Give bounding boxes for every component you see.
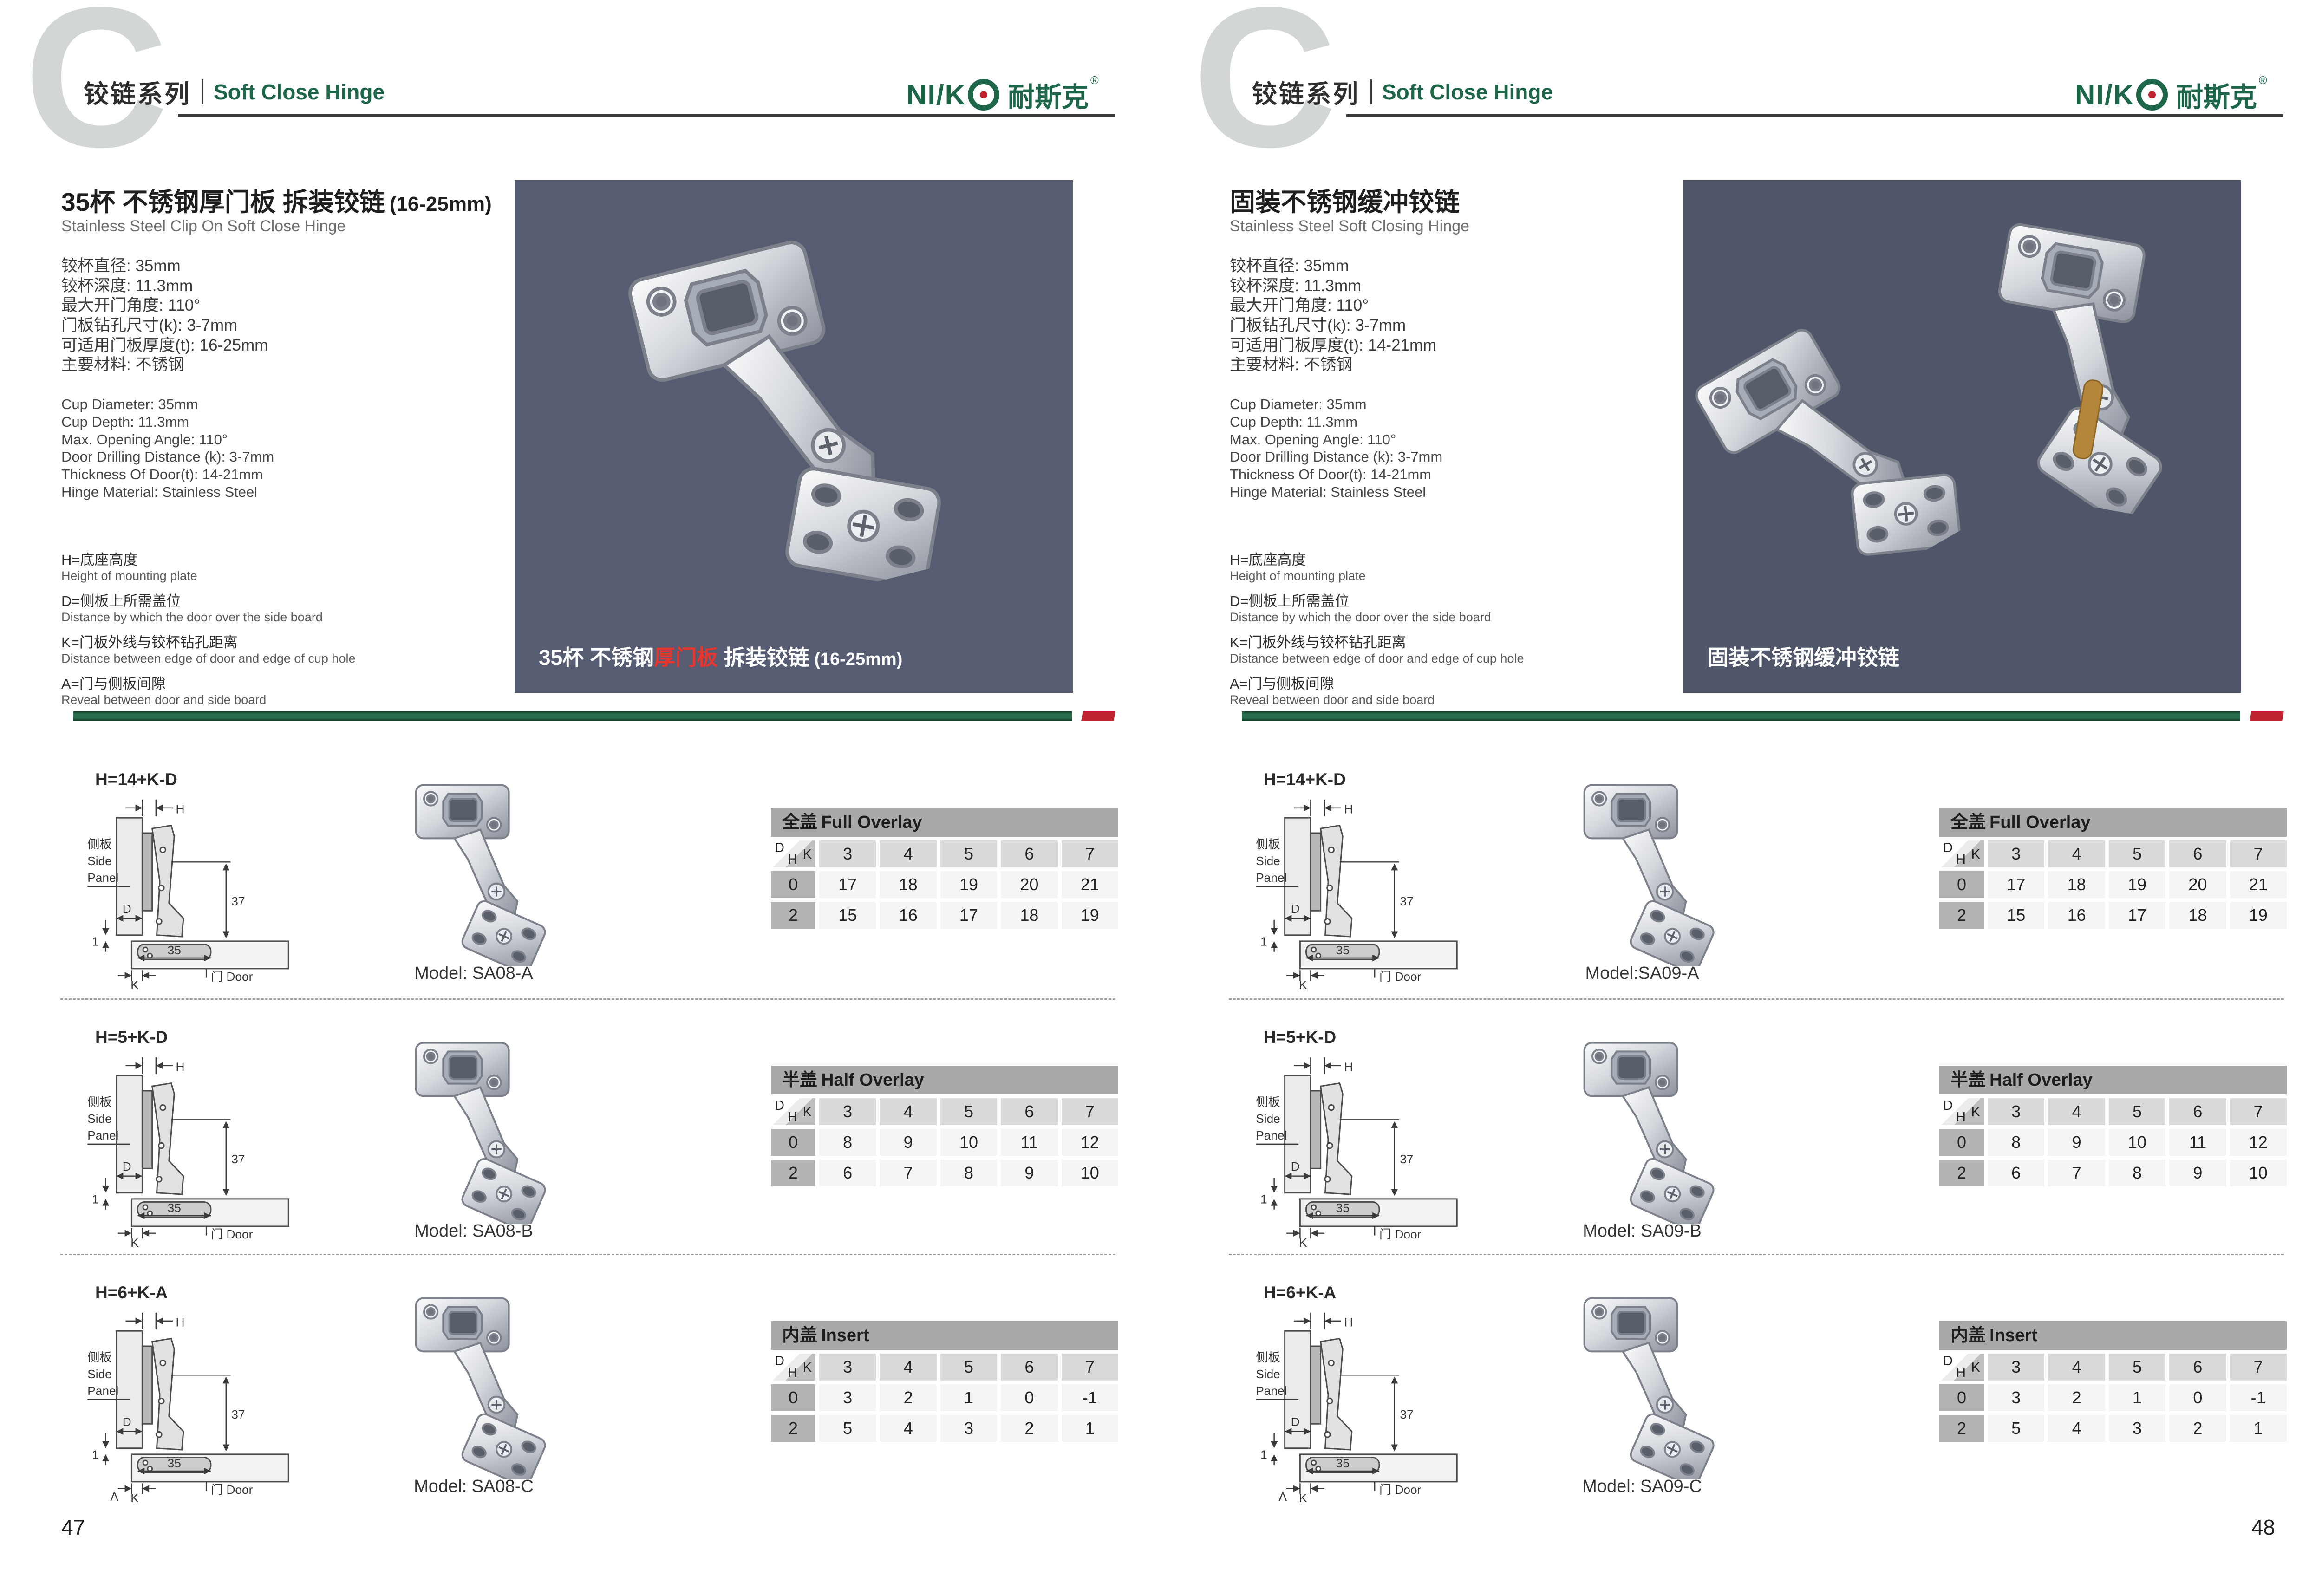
legend-item: K=门板外线与铰杯钻孔距离 Distance between edge of d… bbox=[61, 631, 355, 666]
page-number: 47 bbox=[61, 1515, 85, 1540]
caption-text: 拆装铰链 bbox=[718, 645, 809, 670]
row-header: 2 bbox=[771, 1415, 815, 1442]
spec-line: Max. Opening Angle: 110° bbox=[1230, 431, 1442, 449]
table-cell: 18 bbox=[880, 871, 936, 898]
mounting-formula: H=6+K-A bbox=[95, 1283, 168, 1303]
col-header: 4 bbox=[880, 840, 936, 867]
corner-k: K bbox=[1971, 1105, 1980, 1120]
corner-h: H bbox=[788, 852, 797, 867]
table-cell: 2 bbox=[2048, 1384, 2105, 1411]
catalog-spread: C 铰链系列 Soft Close Hinge NI/K 耐斯克 ® 35杯 不… bbox=[0, 0, 2322, 1596]
green-divider-bar bbox=[73, 711, 1072, 721]
page-header: 铰链系列 Soft Close Hinge bbox=[84, 73, 385, 110]
variant-row-insert: H=6+K-A A Model: SA08-C 内盖Insert D K H 3… bbox=[0, 1270, 1168, 1523]
col-header: 7 bbox=[1062, 1354, 1118, 1381]
table-cell: 12 bbox=[1062, 1129, 1118, 1156]
table-cell: 10 bbox=[2109, 1129, 2165, 1156]
table-corner-cell: D K H bbox=[771, 1098, 815, 1125]
technical-diagram: A bbox=[1254, 1303, 1483, 1503]
hero-hinge-image bbox=[515, 180, 1073, 693]
technical-diagram bbox=[86, 1048, 314, 1248]
diagram-drawing bbox=[87, 1313, 288, 1503]
table-cell: 10 bbox=[2230, 1160, 2287, 1186]
row-header: 0 bbox=[1939, 871, 1984, 898]
caption-highlight: 厚门板 bbox=[654, 645, 718, 670]
brand-logo: NI/K 耐斯克 ® bbox=[907, 75, 1099, 114]
model-label: Model: SA08-A bbox=[325, 964, 622, 984]
header-rule bbox=[178, 114, 1115, 117]
model-label: Model:SA09-A bbox=[1494, 964, 1791, 984]
table-cell: 9 bbox=[2169, 1160, 2226, 1186]
technical-diagram bbox=[1254, 790, 1483, 990]
table-title-en: Full Overlay bbox=[1989, 813, 2091, 832]
brand-logo-cn: 耐斯克 bbox=[2176, 75, 2257, 114]
table-corner-cell: D K H bbox=[1939, 1098, 1984, 1125]
table-cell: 1 bbox=[1062, 1415, 1118, 1442]
dim-a-label: A bbox=[110, 1490, 118, 1503]
table-cell: 10 bbox=[940, 1129, 997, 1156]
spec-line: Max. Opening Angle: 110° bbox=[61, 431, 274, 449]
table-cell: 21 bbox=[1062, 871, 1118, 898]
series-title-cn: 铰链系列 bbox=[84, 73, 191, 110]
series-title-en: Soft Close Hinge bbox=[1382, 79, 1553, 104]
table-cell: 2 bbox=[2169, 1415, 2226, 1442]
half-overlay-table: 半盖Half Overlay D K H 3 4 5 6 7 0 8 9 10 bbox=[1939, 1066, 2287, 1186]
legend-cn: K=门板外线与铰杯钻孔距离 bbox=[1230, 631, 1524, 651]
variant-row-half-overlay: H=5+K-D Model: SA08-B 半盖Half Overlay D K… bbox=[0, 1015, 1168, 1268]
col-header: 6 bbox=[2169, 840, 2226, 867]
catalog-page-47: C 铰链系列 Soft Close Hinge NI/K 耐斯克 ® 35杯 不… bbox=[0, 0, 1168, 1596]
specs-chinese: 铰杯直径: 35mm 铰杯深度: 11.3mm 最大开门角度: 110° 门板钻… bbox=[61, 256, 268, 375]
table-title-en: Half Overlay bbox=[1989, 1070, 2093, 1090]
table-cell: 18 bbox=[2048, 871, 2105, 898]
diagram-drawing bbox=[1256, 800, 1457, 990]
series-title-cn: 铰链系列 bbox=[1252, 73, 1360, 110]
table-grid: D K H 3 4 5 6 7 0 17 18 19 20 21 2 bbox=[771, 840, 1118, 929]
model-label: Model: SA08-C bbox=[325, 1477, 622, 1497]
hero-photo: 固装不锈钢缓冲铰链 bbox=[1683, 180, 2241, 693]
table-cell: 11 bbox=[1001, 1129, 1057, 1156]
corner-h: H bbox=[788, 1365, 797, 1381]
row-separator bbox=[60, 1254, 1115, 1255]
row-separator bbox=[1229, 998, 2284, 1000]
registered-mark: ® bbox=[2259, 74, 2267, 87]
model-label: Model: SA09-C bbox=[1494, 1477, 1791, 1497]
table-cell: 3 bbox=[940, 1415, 997, 1442]
brand-logo-text: NI/K bbox=[2075, 79, 2134, 111]
table-cell: 9 bbox=[1001, 1160, 1057, 1186]
table-title-cn: 半盖 bbox=[1950, 1070, 1986, 1090]
table-cell: 18 bbox=[2169, 902, 2226, 929]
table-cell: 21 bbox=[2230, 871, 2287, 898]
row-header: 2 bbox=[1939, 1415, 1984, 1442]
hinge-image bbox=[1585, 785, 1716, 966]
spec-line: Cup Diameter: 35mm bbox=[1230, 396, 1442, 413]
hinge-image bbox=[416, 1043, 548, 1224]
corner-d: D bbox=[775, 1354, 784, 1369]
spec-line: Door Drilling Distance (k): 3-7mm bbox=[1230, 448, 1442, 466]
caption-text: 35杯 不锈钢 bbox=[539, 645, 654, 670]
table-title-cn: 半盖 bbox=[782, 1070, 817, 1090]
full-overlay-table: 全盖Full Overlay D K H 3 4 5 6 7 0 17 18 1… bbox=[1939, 808, 2287, 929]
col-header: 5 bbox=[940, 1098, 997, 1125]
legend-cn: H=底座高度 bbox=[61, 548, 355, 569]
spec-line: Thickness Of Door(t): 14-21mm bbox=[61, 466, 274, 483]
legend-en: Height of mounting plate bbox=[1230, 569, 1524, 583]
product-title-en: Stainless Steel Soft Closing Hinge bbox=[1230, 217, 1469, 235]
spec-line: Hinge Material: Stainless Steel bbox=[1230, 483, 1442, 501]
col-header: 4 bbox=[2048, 840, 2105, 867]
table-cell: 16 bbox=[2048, 902, 2105, 929]
corner-d: D bbox=[775, 1098, 784, 1114]
table-title-cn: 全盖 bbox=[782, 813, 817, 832]
table-cell: 15 bbox=[1988, 902, 2044, 929]
variant-row-full-overlay: H=14+K-D Model: SA08-A 全盖Full Overlay D … bbox=[0, 757, 1168, 1010]
row-header: 0 bbox=[1939, 1384, 1984, 1411]
table-cell: 17 bbox=[1988, 871, 2044, 898]
table-cell: 19 bbox=[940, 871, 997, 898]
spec-line: 最大开门角度: 110° bbox=[1230, 296, 1436, 316]
col-header: 3 bbox=[819, 1098, 876, 1125]
table-title-cn: 全盖 bbox=[1950, 813, 1986, 832]
table-title-en: Full Overlay bbox=[821, 813, 922, 832]
table-title-en: Half Overlay bbox=[821, 1070, 924, 1090]
col-header: 4 bbox=[2048, 1098, 2105, 1125]
table-title-cn: 内盖 bbox=[782, 1326, 817, 1345]
hinge-thumbnail bbox=[1579, 1293, 1728, 1479]
spec-line: Cup Diameter: 35mm bbox=[61, 396, 274, 413]
page-number: 48 bbox=[2251, 1515, 2275, 1540]
spec-line: Door Drilling Distance (k): 3-7mm bbox=[61, 448, 274, 466]
legend-en: Height of mounting plate bbox=[61, 569, 355, 583]
col-header: 4 bbox=[880, 1098, 936, 1125]
legend-en: Reveal between door and side board bbox=[1230, 693, 1524, 707]
insert-table: 内盖Insert D K H 3 4 5 6 7 0 3 2 1 bbox=[771, 1321, 1118, 1442]
header-divider bbox=[202, 79, 203, 104]
table-grid: D K H 3 4 5 6 7 0 3 2 1 0 -1 2 5 bbox=[771, 1354, 1118, 1442]
caption-range: (16-25mm) bbox=[809, 650, 903, 669]
table-cell: 9 bbox=[880, 1129, 936, 1156]
col-header: 5 bbox=[2109, 840, 2165, 867]
variant-row-insert: H=6+K-A A Model: SA09-C 内盖Insert D K H 3… bbox=[1168, 1270, 2322, 1523]
table-grid: D K H 3 4 5 6 7 0 8 9 10 11 12 2 6 bbox=[771, 1098, 1118, 1186]
table-cell: 4 bbox=[2048, 1415, 2105, 1442]
col-header: 3 bbox=[1988, 840, 2044, 867]
hinge-image bbox=[416, 785, 548, 966]
table-cell: 6 bbox=[1988, 1160, 2044, 1186]
spec-line: Cup Depth: 11.3mm bbox=[1230, 413, 1442, 431]
corner-k: K bbox=[803, 1105, 812, 1120]
product-title-en: Stainless Steel Clip On Soft Close Hinge bbox=[61, 217, 346, 235]
legend-item: H=底座高度 Height of mounting plate bbox=[1230, 548, 1524, 583]
diagram-drawing bbox=[1256, 1313, 1457, 1503]
col-header: 4 bbox=[2048, 1354, 2105, 1381]
model-label: Model: SA09-B bbox=[1494, 1221, 1791, 1241]
logo-dot-icon bbox=[980, 91, 987, 98]
legend-item: D=侧板上所需盖位 Distance by which the door ove… bbox=[61, 589, 355, 625]
table-cell: 8 bbox=[819, 1129, 876, 1156]
col-header: 5 bbox=[940, 840, 997, 867]
table-cell: 2 bbox=[1001, 1415, 1057, 1442]
col-header: 7 bbox=[2230, 840, 2287, 867]
insert-table: 内盖Insert D K H 3 4 5 6 7 0 3 2 1 bbox=[1939, 1321, 2287, 1442]
row-header: 2 bbox=[1939, 902, 1984, 929]
legend-en: Distance by which the door over the side… bbox=[61, 610, 355, 625]
table-cell: -1 bbox=[2230, 1384, 2287, 1411]
corner-h: H bbox=[1956, 1365, 1966, 1381]
row-separator bbox=[60, 998, 1115, 1000]
hinge-thumbnail bbox=[411, 1293, 560, 1479]
spec-line: 可适用门板厚度(t): 16-25mm bbox=[61, 336, 268, 356]
table-cell: 16 bbox=[880, 902, 936, 929]
table-title-en: Insert bbox=[821, 1326, 869, 1345]
hinge-image bbox=[1585, 1298, 1716, 1479]
variant-row-half-overlay: H=5+K-D Model: SA09-B 半盖Half Overlay D K… bbox=[1168, 1015, 2322, 1268]
table-title: 内盖Insert bbox=[771, 1321, 1118, 1350]
table-cell: 17 bbox=[2109, 902, 2165, 929]
table-cell: 3 bbox=[2109, 1415, 2165, 1442]
table-cell: 15 bbox=[819, 902, 876, 929]
dim-a-label: A bbox=[1278, 1490, 1287, 1503]
legend-cn: A=门与侧板间隙 bbox=[61, 672, 355, 693]
brand-logo-cn: 耐斯克 bbox=[1008, 75, 1089, 114]
table-cell: 17 bbox=[940, 902, 997, 929]
table-cell: 2 bbox=[880, 1384, 936, 1411]
hero-photo: 35杯 不锈钢厚门板 拆装铰链 (16-25mm) bbox=[515, 180, 1073, 693]
hinge-thumbnail bbox=[411, 780, 560, 966]
table-cell: 11 bbox=[2169, 1129, 2226, 1156]
table-cell: 12 bbox=[2230, 1129, 2287, 1156]
table-cell: 8 bbox=[2109, 1160, 2165, 1186]
spec-line: 铰杯深度: 11.3mm bbox=[1230, 276, 1436, 296]
hinge-image bbox=[1585, 1043, 1716, 1224]
legend-item: A=门与侧板间隙 Reveal between door and side bo… bbox=[61, 672, 355, 707]
table-cell: 6 bbox=[819, 1160, 876, 1186]
table-cell: 19 bbox=[2109, 871, 2165, 898]
table-cell: 1 bbox=[2230, 1415, 2287, 1442]
legend-item: D=侧板上所需盖位 Distance by which the door ove… bbox=[1230, 589, 1524, 625]
logo-o-icon bbox=[968, 79, 999, 111]
table-cell: 19 bbox=[2230, 902, 2287, 929]
hinge-thumbnail bbox=[1579, 1038, 1728, 1224]
legend-en: Distance by which the door over the side… bbox=[1230, 610, 1524, 625]
diagram-drawing bbox=[87, 1057, 288, 1248]
green-divider-bar bbox=[1242, 711, 2240, 721]
product-title-cn: 35杯 不锈钢厚门板 拆装铰链 bbox=[61, 188, 385, 216]
table-cell: 10 bbox=[1062, 1160, 1118, 1186]
red-divider-tip bbox=[2250, 711, 2284, 721]
product-title-range: (16-25mm) bbox=[390, 193, 492, 215]
table-grid: D K H 3 4 5 6 7 0 17 18 19 20 21 2 bbox=[1939, 840, 2287, 929]
table-cell: 1 bbox=[940, 1384, 997, 1411]
table-cell: 1 bbox=[2109, 1384, 2165, 1411]
corner-h: H bbox=[788, 1110, 797, 1125]
table-cell: 9 bbox=[2048, 1129, 2105, 1156]
logo-o-icon bbox=[2136, 79, 2168, 111]
legend-cn: D=侧板上所需盖位 bbox=[61, 589, 355, 610]
table-corner-cell: D K H bbox=[771, 1354, 815, 1381]
spec-line: 铰杯直径: 35mm bbox=[61, 256, 268, 276]
col-header: 5 bbox=[2109, 1098, 2165, 1125]
row-header: 0 bbox=[1939, 1129, 1984, 1156]
series-title-en: Soft Close Hinge bbox=[214, 79, 385, 104]
table-cell: 17 bbox=[819, 871, 876, 898]
mounting-formula: H=14+K-D bbox=[1264, 770, 1346, 789]
legend-cn: H=底座高度 bbox=[1230, 548, 1524, 569]
legend-item: K=门板外线与铰杯钻孔距离 Distance between edge of d… bbox=[1230, 631, 1524, 666]
brand-logo-text: NI/K bbox=[907, 79, 966, 111]
table-cell: 18 bbox=[1001, 902, 1057, 929]
table-title: 半盖Half Overlay bbox=[1939, 1066, 2287, 1094]
table-cell: 20 bbox=[2169, 871, 2226, 898]
spec-line: Hinge Material: Stainless Steel bbox=[61, 483, 274, 501]
table-cell: 8 bbox=[940, 1160, 997, 1186]
row-header: 0 bbox=[771, 1129, 815, 1156]
product-title-cn: 固装不锈钢缓冲铰链 bbox=[1230, 188, 1460, 216]
legend-cn: A=门与侧板间隙 bbox=[1230, 672, 1524, 693]
col-header: 7 bbox=[1062, 1098, 1118, 1125]
row-header: 2 bbox=[1939, 1160, 1984, 1186]
photo-caption: 35杯 不锈钢厚门板 拆装铰链 (16-25mm) bbox=[539, 641, 902, 671]
legend-en: Distance between edge of door and edge o… bbox=[61, 651, 355, 666]
hinge-image bbox=[416, 1298, 548, 1479]
table-cell: 4 bbox=[880, 1415, 936, 1442]
col-header: 3 bbox=[1988, 1098, 2044, 1125]
legend-cn: D=侧板上所需盖位 bbox=[1230, 589, 1524, 610]
table-title-en: Insert bbox=[1989, 1326, 2037, 1345]
table-title: 全盖Full Overlay bbox=[771, 808, 1118, 837]
specs-english: Cup Diameter: 35mm Cup Depth: 11.3mm Max… bbox=[61, 396, 274, 501]
col-header: 7 bbox=[2230, 1354, 2287, 1381]
catalog-page-48: C 铰链系列 Soft Close Hinge NI/K 耐斯克 ® 固装不锈钢… bbox=[1168, 0, 2322, 1596]
row-header: 2 bbox=[771, 902, 815, 929]
table-title-cn: 内盖 bbox=[1950, 1326, 1986, 1345]
spec-line: 铰杯直径: 35mm bbox=[1230, 256, 1436, 276]
table-corner-cell: D K H bbox=[1939, 840, 1984, 867]
corner-h: H bbox=[1956, 852, 1966, 867]
spec-line: 主要材料: 不锈钢 bbox=[61, 355, 268, 375]
row-separator bbox=[1229, 1254, 2284, 1255]
dimension-legend: H=底座高度 Height of mounting plate D=侧板上所需盖… bbox=[1230, 548, 1524, 713]
col-header: 6 bbox=[2169, 1354, 2226, 1381]
table-cell: 20 bbox=[1001, 871, 1057, 898]
col-header: 5 bbox=[940, 1354, 997, 1381]
row-header: 0 bbox=[771, 871, 815, 898]
table-corner-cell: D K H bbox=[1939, 1354, 1984, 1381]
table-cell: 5 bbox=[1988, 1415, 2044, 1442]
mounting-formula: H=5+K-D bbox=[1264, 1028, 1336, 1047]
col-header: 6 bbox=[1001, 1098, 1057, 1125]
col-header: 7 bbox=[1062, 840, 1118, 867]
row-header: 0 bbox=[771, 1384, 815, 1411]
full-overlay-table: 全盖Full Overlay D K H 3 4 5 6 7 0 17 18 1… bbox=[771, 808, 1118, 929]
specs-chinese: 铰杯直径: 35mm 铰杯深度: 11.3mm 最大开门角度: 110° 门板钻… bbox=[1230, 256, 1436, 375]
hero-hinge-image bbox=[1683, 180, 2241, 693]
technical-diagram: A bbox=[86, 1303, 314, 1503]
specs-english: Cup Diameter: 35mm Cup Depth: 11.3mm Max… bbox=[1230, 396, 1442, 501]
col-header: 5 bbox=[2109, 1354, 2165, 1381]
col-header: 7 bbox=[2230, 1098, 2287, 1125]
legend-cn: K=门板外线与铰杯钻孔距离 bbox=[61, 631, 355, 651]
corner-h: H bbox=[1956, 1110, 1966, 1125]
spec-line: 可适用门板厚度(t): 14-21mm bbox=[1230, 336, 1436, 356]
table-cell: 3 bbox=[819, 1384, 876, 1411]
spec-line: 门板钻孔尺寸(k): 3-7mm bbox=[61, 316, 268, 336]
spec-line: 门板钻孔尺寸(k): 3-7mm bbox=[1230, 316, 1436, 336]
header-divider bbox=[1370, 79, 1372, 104]
mounting-formula: H=6+K-A bbox=[1264, 1283, 1336, 1303]
model-label: Model: SA08-B bbox=[325, 1221, 622, 1241]
corner-k: K bbox=[803, 847, 812, 862]
spec-line: 主要材料: 不锈钢 bbox=[1230, 355, 1436, 375]
spec-line: 最大开门角度: 110° bbox=[61, 296, 268, 316]
legend-item: H=底座高度 Height of mounting plate bbox=[61, 548, 355, 583]
col-header: 6 bbox=[1001, 1354, 1057, 1381]
hinge-thumbnail bbox=[1579, 780, 1728, 966]
legend-item: A=门与侧板间隙 Reveal between door and side bo… bbox=[1230, 672, 1524, 707]
header-rule bbox=[1346, 114, 2283, 117]
table-title: 内盖Insert bbox=[1939, 1321, 2287, 1350]
corner-d: D bbox=[1943, 1098, 1953, 1114]
half-overlay-table: 半盖Half Overlay D K H 3 4 5 6 7 0 8 9 10 bbox=[771, 1066, 1118, 1186]
corner-k: K bbox=[1971, 1360, 1980, 1375]
table-title: 半盖Half Overlay bbox=[771, 1066, 1118, 1094]
mounting-formula: H=14+K-D bbox=[95, 770, 177, 789]
table-cell: 5 bbox=[819, 1415, 876, 1442]
legend-en: Distance between edge of door and edge o… bbox=[1230, 651, 1524, 666]
dimension-legend: H=底座高度 Height of mounting plate D=侧板上所需盖… bbox=[61, 548, 355, 713]
technical-diagram bbox=[1254, 1048, 1483, 1248]
logo-dot-icon bbox=[2148, 91, 2156, 98]
col-header: 3 bbox=[819, 1354, 876, 1381]
corner-k: K bbox=[803, 1360, 812, 1375]
col-header: 4 bbox=[880, 1354, 936, 1381]
registered-mark: ® bbox=[1090, 74, 1099, 87]
technical-diagram bbox=[86, 790, 314, 990]
table-grid: D K H 3 4 5 6 7 0 3 2 1 0 -1 2 5 bbox=[1939, 1354, 2287, 1442]
col-header: 3 bbox=[1988, 1354, 2044, 1381]
corner-d: D bbox=[1943, 1354, 1953, 1369]
table-grid: D K H 3 4 5 6 7 0 8 9 10 11 12 2 6 bbox=[1939, 1098, 2287, 1186]
col-header: 3 bbox=[819, 840, 876, 867]
table-title: 全盖Full Overlay bbox=[1939, 808, 2287, 837]
brand-logo: NI/K 耐斯克 ® bbox=[2075, 75, 2267, 114]
page-header: 铰链系列 Soft Close Hinge bbox=[1252, 73, 1553, 110]
row-header: 2 bbox=[771, 1160, 815, 1186]
corner-k: K bbox=[1971, 847, 1980, 862]
table-cell: 8 bbox=[1988, 1129, 2044, 1156]
spec-line: 铰杯深度: 11.3mm bbox=[61, 276, 268, 296]
spec-line: Thickness Of Door(t): 14-21mm bbox=[1230, 466, 1442, 483]
table-cell: 0 bbox=[1001, 1384, 1057, 1411]
diagram-drawing bbox=[1256, 1057, 1457, 1248]
col-header: 6 bbox=[1001, 840, 1057, 867]
spec-line: Cup Depth: 11.3mm bbox=[61, 413, 274, 431]
corner-d: D bbox=[1943, 840, 1953, 856]
table-cell: 0 bbox=[2169, 1384, 2226, 1411]
diagram-drawing bbox=[87, 800, 288, 990]
hinge-thumbnail bbox=[411, 1038, 560, 1224]
photo-caption: 固装不锈钢缓冲铰链 bbox=[1707, 641, 1899, 671]
table-corner-cell: D K H bbox=[771, 840, 815, 867]
col-header: 6 bbox=[2169, 1098, 2226, 1125]
table-cell: 7 bbox=[880, 1160, 936, 1186]
red-divider-tip bbox=[1081, 711, 1115, 721]
corner-d: D bbox=[775, 840, 784, 856]
table-cell: -1 bbox=[1062, 1384, 1118, 1411]
legend-en: Reveal between door and side board bbox=[61, 693, 355, 707]
table-cell: 19 bbox=[1062, 902, 1118, 929]
